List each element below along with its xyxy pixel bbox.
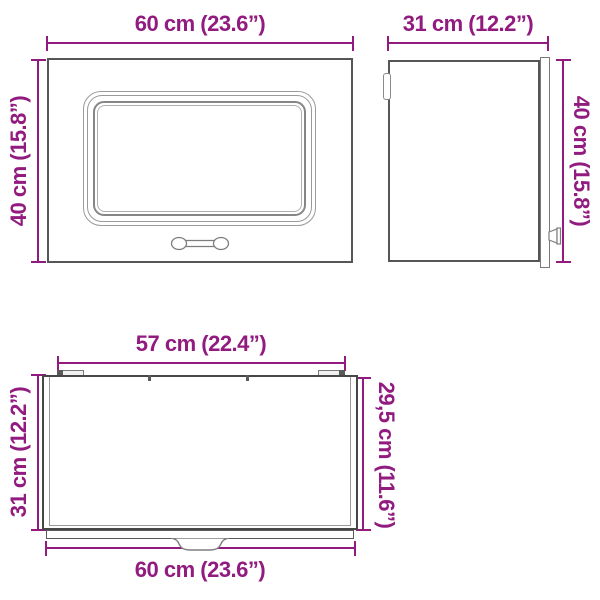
side-knob-icon <box>548 227 563 245</box>
dimension-line-top-inner-depth <box>362 378 364 530</box>
front-handle-icon <box>170 235 230 252</box>
dimension-label-side-height: 40 cm (15.8”) <box>570 96 592 226</box>
dimension-line-top-inner-width <box>58 362 345 364</box>
cabinet-side-view <box>388 60 540 262</box>
dimension-line-top-depth <box>37 375 39 530</box>
dimension-label-top-outer-width: 60 cm (23.6”) <box>135 559 265 581</box>
dimension-line-side-depth <box>388 42 548 44</box>
dimension-label-top-depth: 31 cm (12.2”) <box>8 387 30 517</box>
top-view-interior <box>49 377 351 526</box>
dimension-line-front-height <box>37 60 39 262</box>
shelf-pin-mark-right <box>246 375 249 381</box>
dimension-label-front-width: 60 cm (23.6”) <box>135 13 265 35</box>
dimension-label-side-depth: 31 cm (12.2”) <box>403 13 533 35</box>
dimension-label-top-inner-depth: 29,5 cm (11.6”) <box>375 382 397 529</box>
wall-bracket-icon <box>383 73 391 100</box>
dimension-line-front-width <box>47 42 353 44</box>
shelf-pin-mark-left <box>148 375 151 381</box>
dimension-label-top-inner-width: 57 cm (22.4”) <box>136 333 266 355</box>
front-door-glass-inner <box>97 105 302 212</box>
top-view-handle-icon <box>170 538 230 554</box>
dimension-diagram: 60 cm (23.6”) 40 cm (15.8”) 31 cm (12.2”… <box>0 0 600 600</box>
dimension-label-front-height: 40 cm (15.8”) <box>8 96 30 226</box>
